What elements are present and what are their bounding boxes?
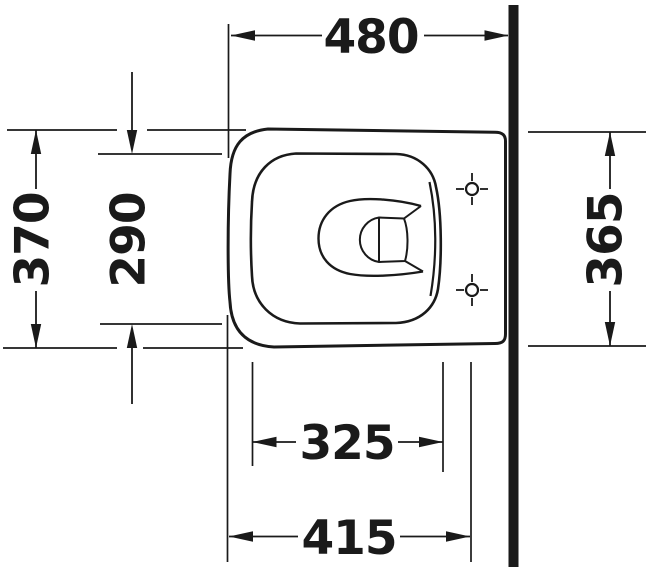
arrow-down	[127, 130, 137, 154]
drain-top-edge-line	[404, 206, 421, 219]
arrow-up	[31, 130, 41, 154]
arrow-right	[446, 531, 470, 541]
toilet-body	[228, 129, 505, 347]
dimension-label-290: 290	[102, 192, 157, 287]
dimension-label-325: 325	[299, 416, 394, 471]
toilet-plan-technical-drawing: 480 370 290 365	[0, 0, 647, 572]
fixing-hole-bottom	[456, 274, 488, 306]
bowl-back-contour	[430, 182, 436, 296]
arrow-up	[605, 132, 615, 156]
fixing-hole-top	[456, 173, 488, 205]
arrow-left	[253, 437, 277, 447]
dimension-290: 290	[98, 72, 222, 404]
arrow-left	[229, 531, 253, 541]
dimension-label-370: 370	[6, 192, 61, 287]
dimension-365: 365	[528, 132, 646, 346]
drain-bottom-edge-line	[405, 261, 423, 272]
arrow-left	[231, 30, 255, 40]
fixing-hole-top-circle	[466, 183, 478, 195]
arrow-up	[127, 324, 137, 348]
drawing-canvas: 480 370 290 365	[0, 0, 647, 572]
seat-rim-outline	[251, 154, 441, 324]
dimension-label-480: 480	[323, 10, 418, 65]
arrow-right	[419, 437, 443, 447]
arrow-down	[605, 322, 615, 346]
dimension-325: 325	[253, 362, 444, 472]
arrow-down	[31, 324, 41, 348]
drain-hole-outline	[360, 218, 408, 263]
dimension-480: 480	[229, 10, 509, 158]
fixing-hole-bottom-circle	[466, 284, 478, 296]
dimension-label-415: 415	[301, 511, 396, 566]
wall-line	[509, 5, 519, 567]
dimension-label-365: 365	[579, 192, 634, 287]
arrow-right	[485, 30, 509, 40]
